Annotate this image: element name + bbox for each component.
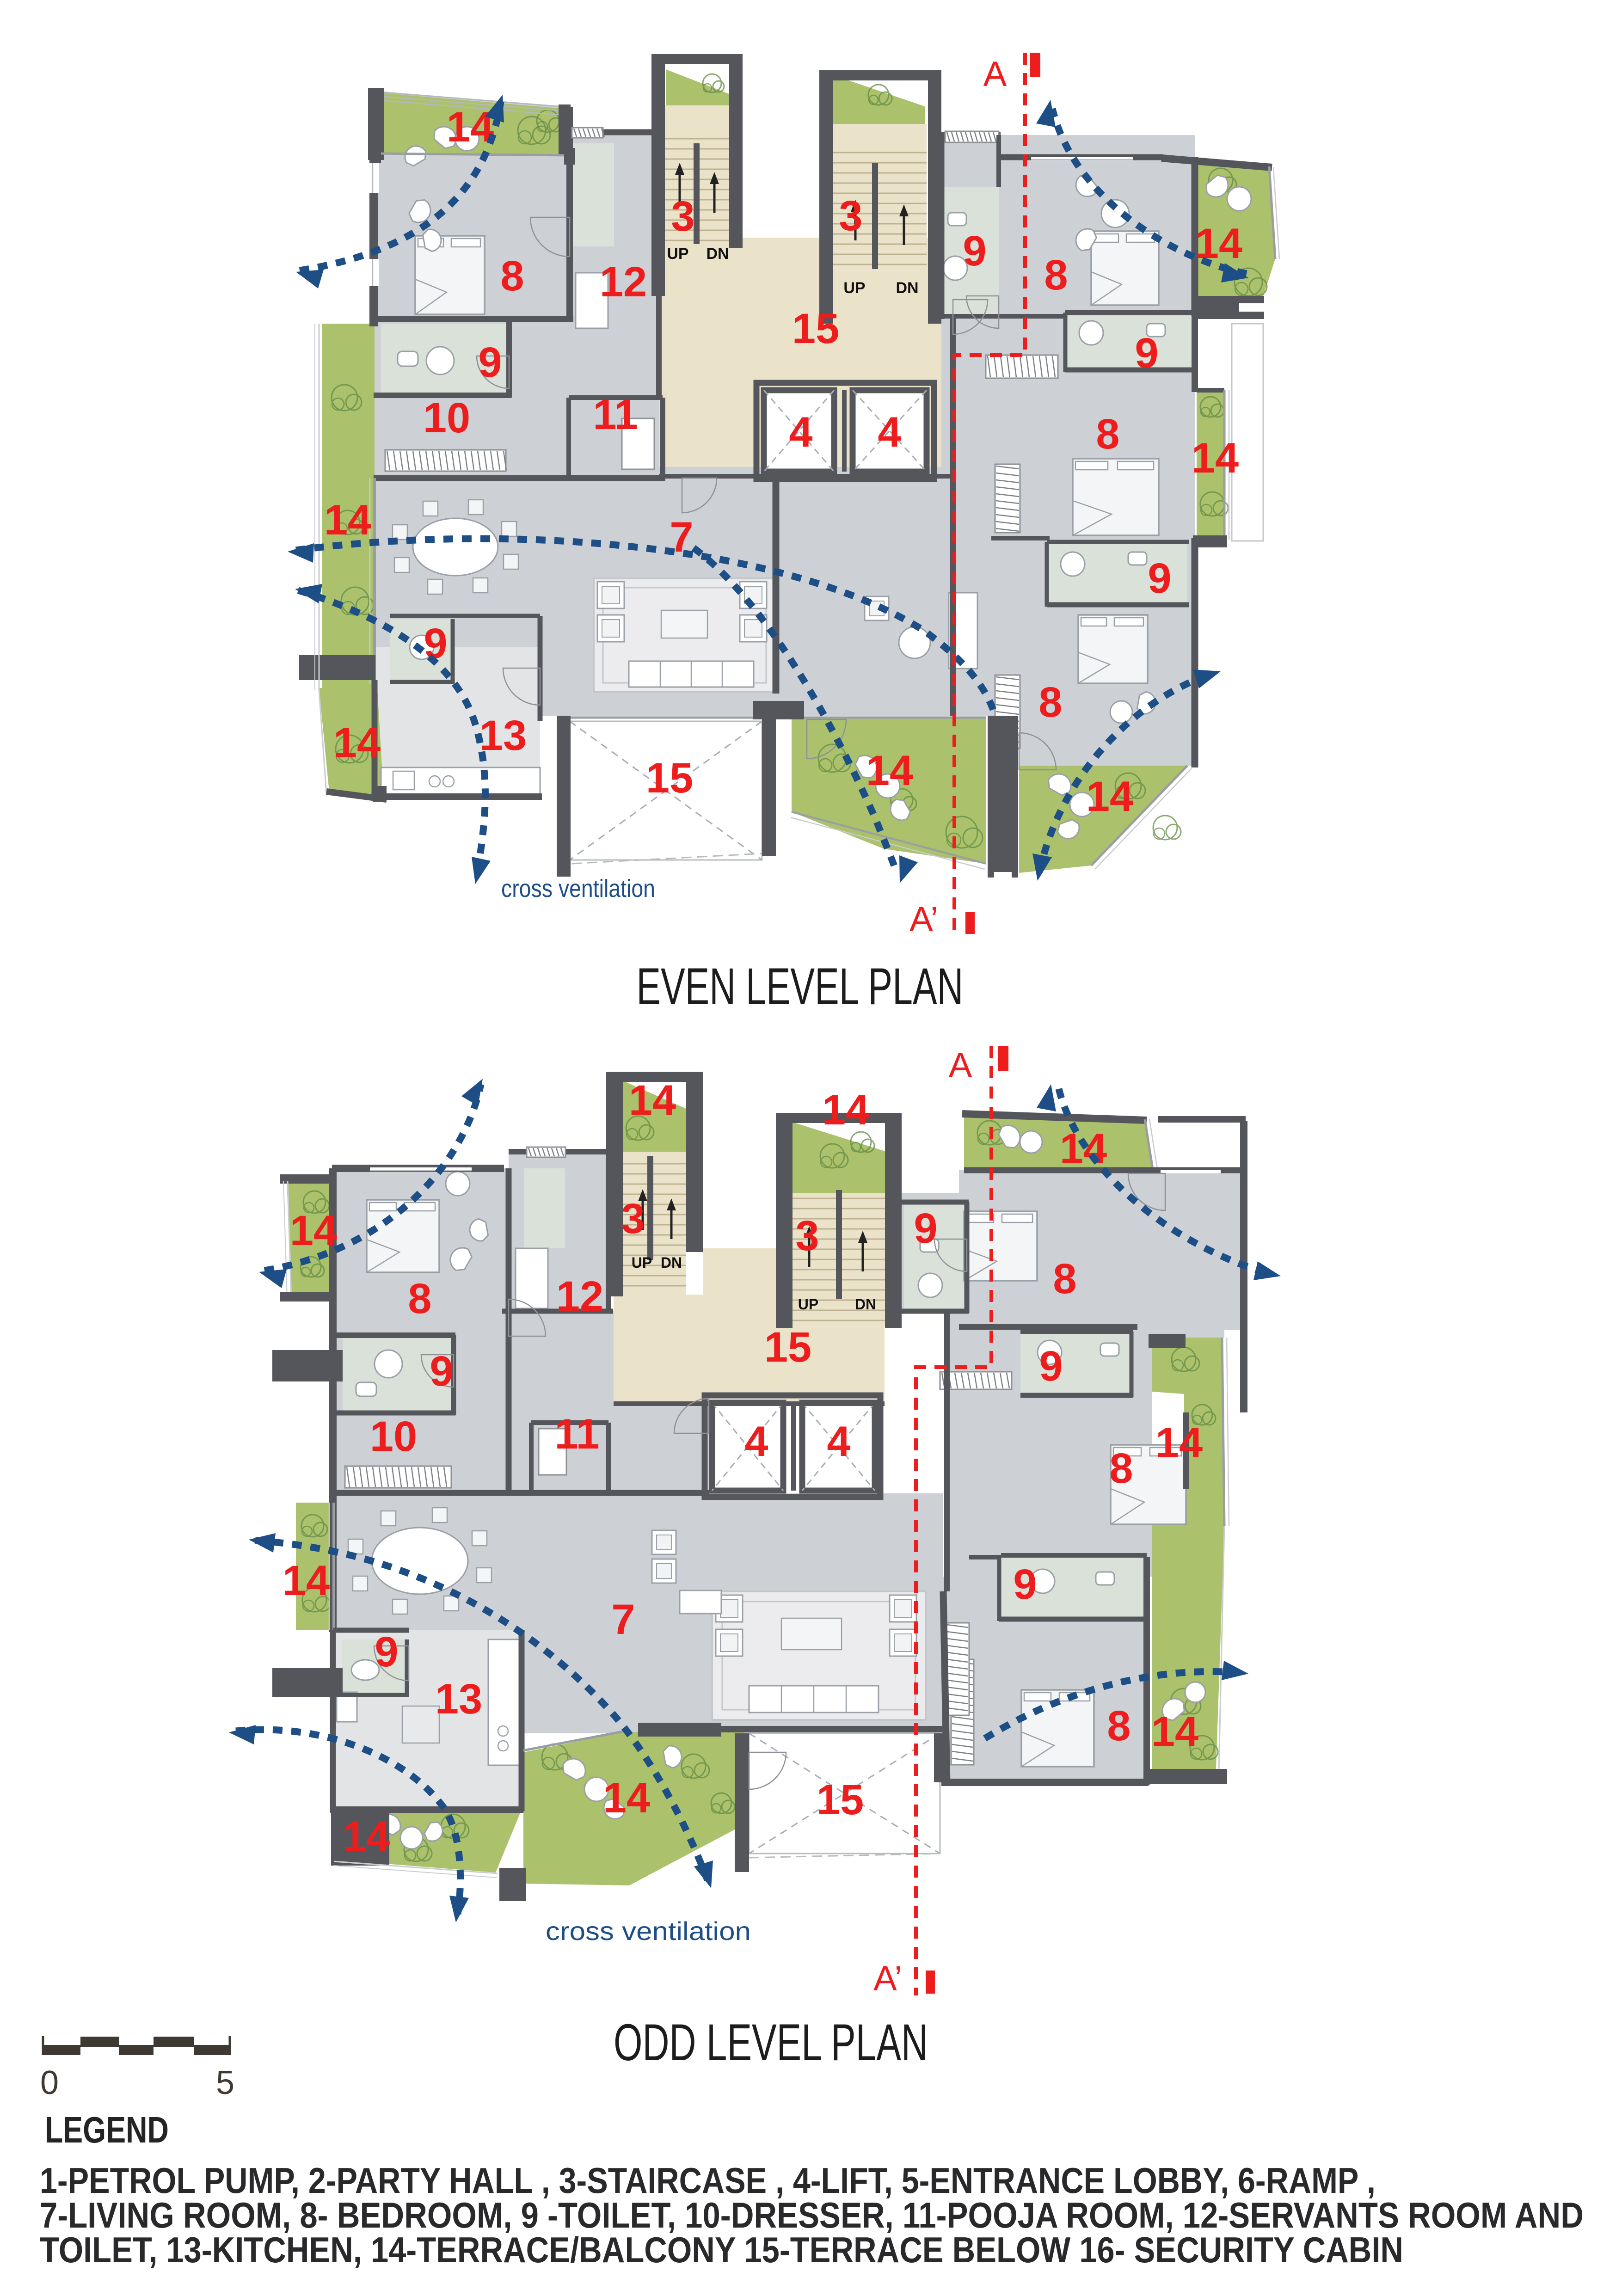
svg-text:cross ventilation: cross ventilation	[501, 875, 655, 902]
svg-text:12: 12	[600, 258, 647, 306]
svg-text:9: 9	[1148, 555, 1171, 602]
svg-text:14: 14	[343, 1813, 390, 1860]
svg-text:9: 9	[478, 339, 502, 386]
svg-text:DN: DN	[896, 279, 918, 297]
svg-text:8: 8	[1096, 411, 1119, 458]
svg-text:3: 3	[671, 193, 694, 240]
svg-text:9: 9	[914, 1205, 937, 1252]
svg-text:15: 15	[764, 1324, 811, 1371]
svg-text:14: 14	[603, 1774, 650, 1822]
svg-text:8: 8	[1038, 679, 1062, 726]
svg-text:4: 4	[878, 409, 901, 456]
svg-text:A: A	[949, 1046, 972, 1085]
svg-text:9: 9	[1039, 1343, 1063, 1390]
svg-text:A: A	[983, 55, 1007, 94]
svg-text:9: 9	[430, 1348, 453, 1395]
svg-text:UP: UP	[667, 245, 688, 263]
svg-text:cross ventilation: cross ventilation	[546, 1916, 751, 1946]
svg-text:9: 9	[1013, 1561, 1037, 1608]
svg-text:11: 11	[554, 1411, 599, 1458]
svg-text:14: 14	[324, 497, 371, 544]
svg-text:14: 14	[447, 104, 494, 151]
svg-text:9: 9	[1135, 330, 1158, 377]
svg-text:A’: A’	[909, 900, 938, 939]
svg-text:9: 9	[963, 227, 986, 275]
svg-text:11: 11	[593, 391, 638, 438]
svg-text:0: 0	[40, 2064, 59, 2101]
svg-text:14: 14	[822, 1087, 869, 1134]
svg-text:4: 4	[827, 1418, 850, 1465]
svg-text:7: 7	[611, 1596, 635, 1643]
svg-text:14: 14	[283, 1557, 330, 1604]
svg-text:5: 5	[216, 2064, 234, 2101]
svg-text:14: 14	[1086, 773, 1133, 820]
svg-text:12: 12	[556, 1273, 603, 1320]
svg-text:10: 10	[423, 394, 470, 442]
svg-text:4: 4	[744, 1418, 768, 1465]
svg-text:15: 15	[646, 755, 693, 802]
svg-text:14: 14	[629, 1077, 676, 1124]
svg-text:3: 3	[621, 1195, 645, 1242]
svg-text:14: 14	[1192, 435, 1239, 482]
svg-text:8: 8	[1053, 1255, 1076, 1302]
svg-text:10: 10	[370, 1413, 417, 1460]
svg-text:UP: UP	[843, 279, 865, 297]
svg-text:14: 14	[333, 719, 381, 767]
svg-text:14: 14	[866, 747, 913, 794]
svg-text:8: 8	[408, 1275, 431, 1322]
svg-text:8: 8	[1044, 252, 1068, 299]
svg-text:A’: A’	[873, 1959, 902, 1998]
svg-text:DN: DN	[661, 1254, 682, 1271]
svg-text:15: 15	[792, 305, 839, 352]
svg-text:UP: UP	[798, 1296, 818, 1313]
svg-text:8: 8	[500, 252, 524, 300]
svg-text:9: 9	[375, 1628, 398, 1676]
svg-text:ODD LEVEL PLAN: ODD LEVEL PLAN	[614, 2014, 928, 2071]
svg-text:14: 14	[290, 1207, 337, 1254]
svg-text:DN: DN	[855, 1296, 876, 1313]
svg-text:14: 14	[1155, 1419, 1203, 1467]
svg-text:UP: UP	[632, 1254, 652, 1271]
svg-text:8: 8	[1107, 1702, 1130, 1750]
svg-text:4: 4	[789, 409, 812, 456]
svg-text:14: 14	[1151, 1708, 1198, 1756]
svg-text:3: 3	[795, 1212, 819, 1259]
svg-text:LEGEND: LEGEND	[45, 2109, 169, 2150]
svg-text:15: 15	[817, 1776, 864, 1823]
svg-text:EVEN LEVEL PLAN: EVEN LEVEL PLAN	[637, 958, 964, 1015]
svg-text:3: 3	[839, 192, 862, 239]
svg-text:13: 13	[435, 1676, 482, 1723]
svg-text:DN: DN	[706, 245, 729, 263]
svg-text:13: 13	[479, 712, 527, 759]
svg-text:8: 8	[1109, 1445, 1133, 1492]
svg-text:TOILET, 13-KITCHEN, 14-TERRAC: TOILET, 13-KITCHEN, 14-TERRACE/BALCONY 1…	[40, 2229, 1403, 2270]
